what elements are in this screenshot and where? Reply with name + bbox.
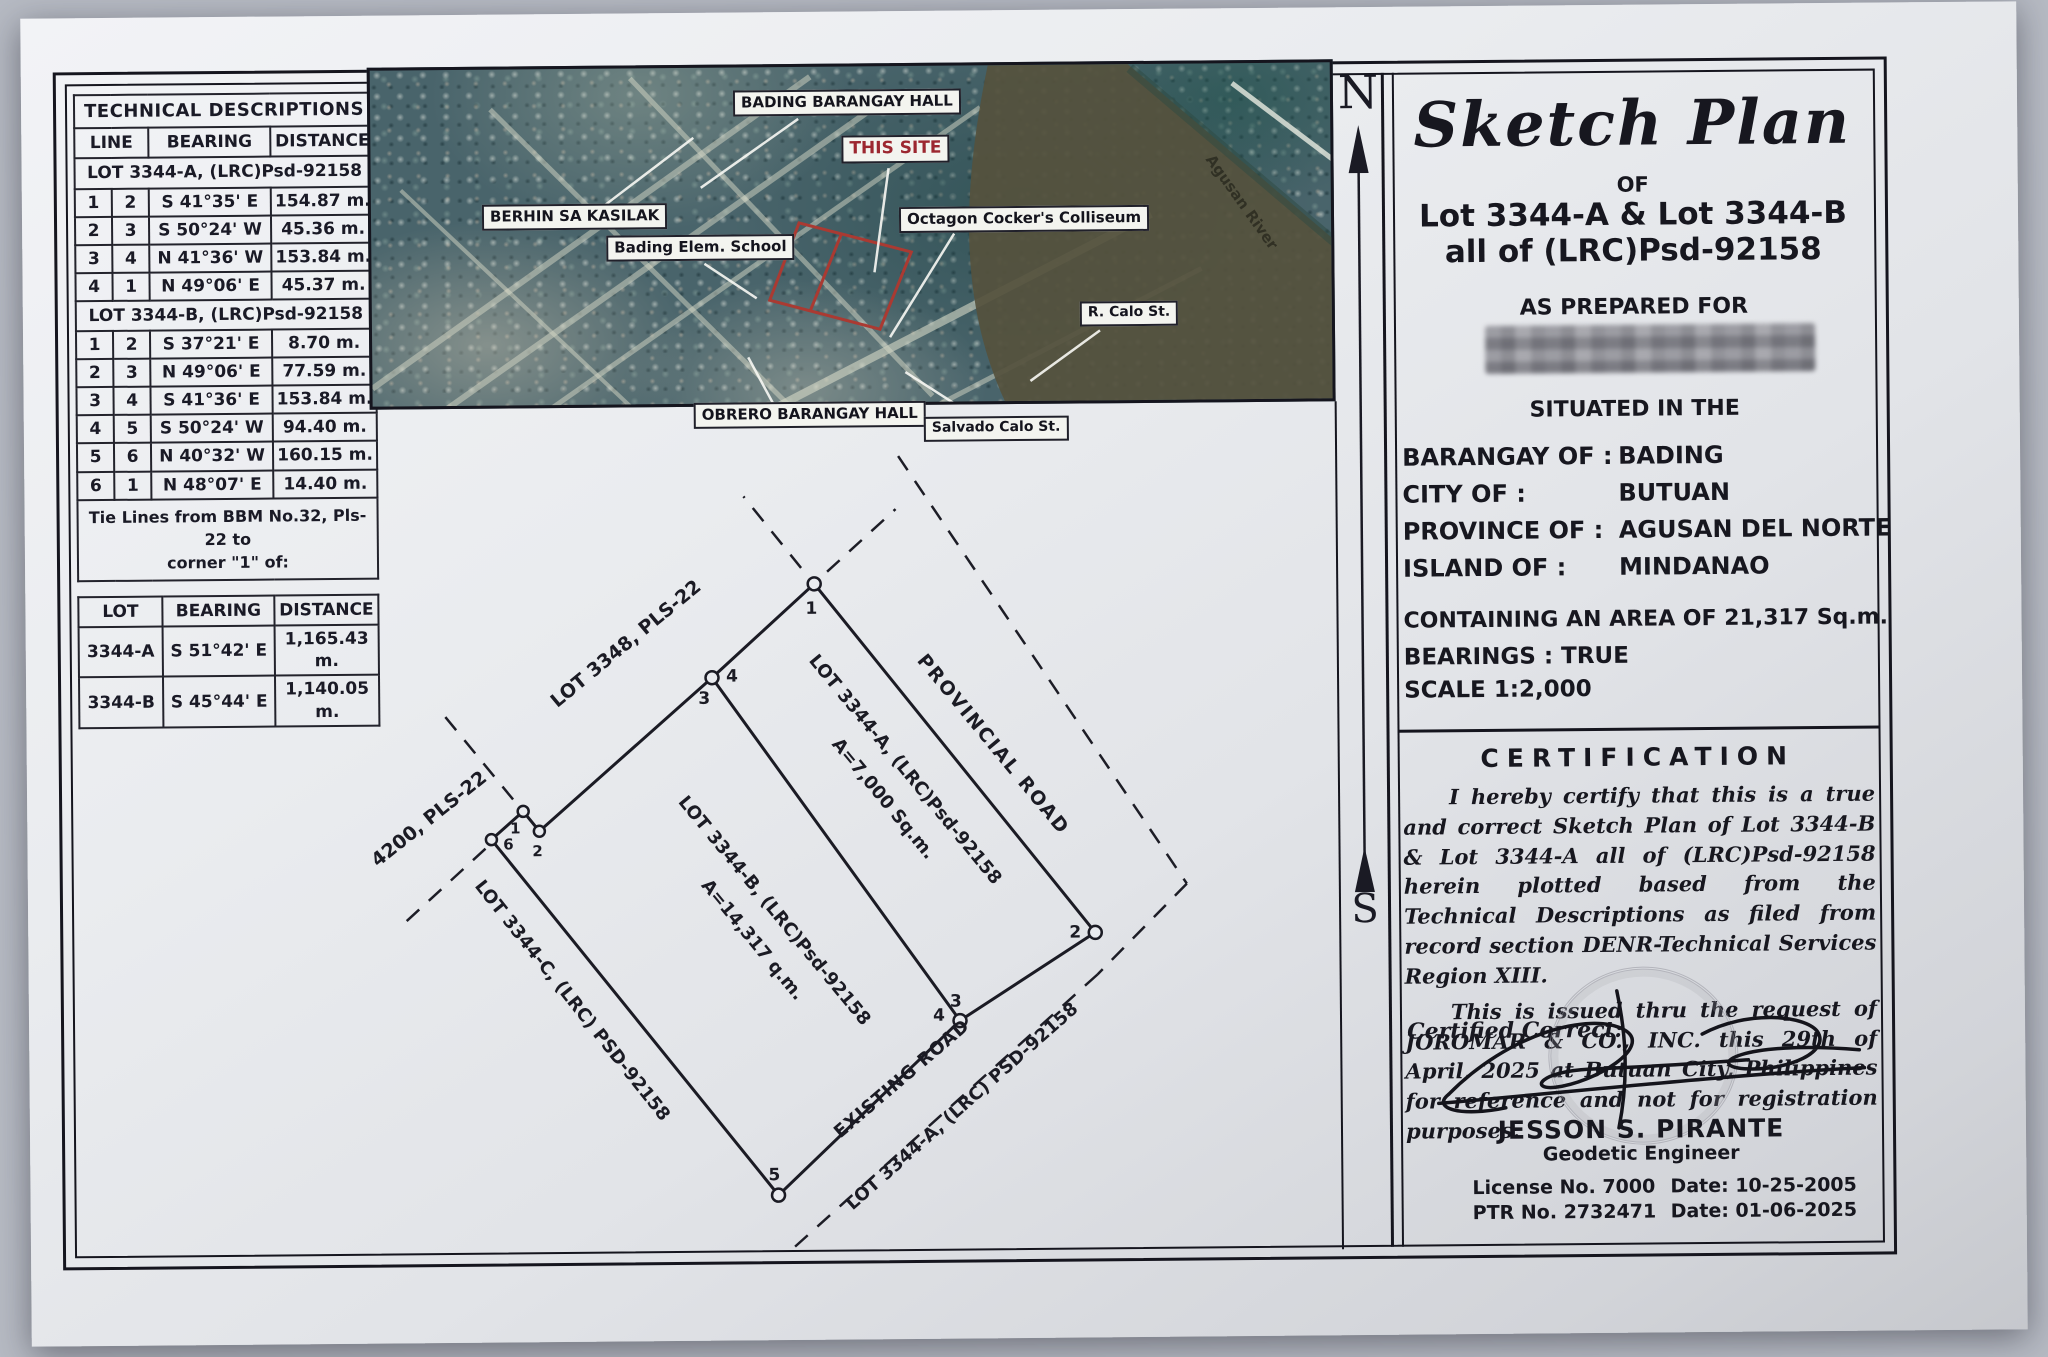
city-label: CITY OF : bbox=[1402, 480, 1526, 509]
technical-descriptions-block: TECHNICAL DESCRIPTIONS LINE BEARING DIST… bbox=[73, 92, 379, 729]
tie-lines-table: LOT BEARING DISTANCE 3344-AS 51°42' E1,1… bbox=[77, 594, 380, 729]
corner-number: 2 bbox=[1069, 923, 1081, 943]
table-row: 12S 41°35' E154.87 m. bbox=[75, 186, 375, 217]
location-row: ISLAND OF : MINDANAO bbox=[1403, 553, 1567, 591]
barangay-value: BADING bbox=[1618, 441, 1724, 470]
corner-number: 3 bbox=[698, 689, 710, 709]
location-row: BARANGAY OF : BADING bbox=[1402, 442, 1613, 481]
table-row: 3344-AS 51°42' E1,165.43 m. bbox=[79, 625, 379, 678]
table-row: 45S 50°24' W94.40 m. bbox=[77, 413, 377, 444]
lot-c-label: LOT 3344-C, (LRC) PSD-92158 bbox=[470, 876, 674, 1125]
table-row: 12S 37°21' E8.70 m. bbox=[76, 329, 376, 360]
agusan-river bbox=[968, 62, 1336, 407]
table-row: 23S 50°24' W45.36 m. bbox=[75, 214, 375, 245]
barangay-label: BARANGAY OF : bbox=[1402, 442, 1613, 472]
lot-plan-diagram: 1 4 3 2 3 4 5 1 6 2 LOT 3348, PLS-22 LOT… bbox=[368, 401, 1345, 1265]
lot-4200-label: LOT 4200, PLS-22 bbox=[368, 767, 491, 901]
map-label-salvado-calo-st: Salvado Calo St. bbox=[924, 416, 1069, 442]
table-row: 61N 48°07' E14.40 m. bbox=[77, 469, 377, 500]
island-value: MINDANAO bbox=[1619, 551, 1770, 580]
map-label-r-calo-st: R. Calo St. bbox=[1080, 301, 1179, 326]
corner-number: 4 bbox=[933, 1006, 945, 1026]
south-label: S bbox=[1342, 889, 1388, 929]
north-label: N bbox=[1335, 69, 1381, 115]
lot-3348-label: LOT 3348, PLS-22 bbox=[546, 576, 705, 713]
tie-lines-note: Tie Lines from BBM No.32, Pls-22 to corn… bbox=[77, 497, 378, 581]
corner-number: 1 bbox=[805, 599, 817, 619]
map-label-bading-hall: BADING BARANGAY HALL bbox=[733, 89, 961, 117]
certification-paragraph-1: I hereby certify that this is a true and… bbox=[1403, 779, 1877, 992]
tie-note-line1: Tie Lines from BBM No.32, Pls-22 to bbox=[82, 503, 372, 552]
ptr-date: Date: 01-06-2025 bbox=[1671, 1198, 1858, 1225]
sheet-content: TECHNICAL DESCRIPTIONS LINE BEARING DIST… bbox=[0, 0, 2048, 1357]
corner-number: 3 bbox=[950, 992, 962, 1012]
title-survey-number: all of (LRC)Psd-92158 bbox=[1390, 231, 1876, 271]
meridian-line bbox=[1359, 167, 1365, 859]
containing-area-line: CONTAINING AN AREA OF 21,317 Sq.m. bbox=[1403, 604, 1888, 633]
corner-number: 5 bbox=[768, 1165, 780, 1185]
situated-in-the-label: SITUATED IN THE bbox=[1392, 395, 1878, 424]
table-header-row: LINE BEARING DISTANCE bbox=[74, 126, 374, 159]
table-row: 3344-BS 45°44' E1,140.05 m. bbox=[79, 675, 379, 728]
scanned-sheet: TECHNICAL DESCRIPTIONS LINE BEARING DIST… bbox=[20, 1, 2028, 1346]
license-block: License No. 7000 PTR No. 2732471 bbox=[1472, 1175, 1656, 1227]
bridge-line bbox=[1232, 82, 1336, 163]
table-row: 34S 41°36' E153.84 m. bbox=[76, 385, 376, 416]
map-label-octagon-coliseum: Octagon Cocker's Colliseum bbox=[899, 205, 1149, 233]
table-row: 23N 49°06' E77.59 m. bbox=[76, 357, 376, 388]
title-lots: Lot 3344-A & Lot 3344-B bbox=[1390, 195, 1876, 235]
tie-note-line2: corner "1" of: bbox=[83, 550, 373, 576]
lot-b-label: LOT 3344-B, (LRC)Psd-92158 bbox=[674, 792, 875, 1030]
technical-descriptions-table: TECHNICAL DESCRIPTIONS LINE BEARING DIST… bbox=[73, 92, 379, 583]
north-arrow bbox=[1335, 117, 1388, 907]
corner-number: 2 bbox=[532, 842, 543, 860]
map-label-elem-school: Bading Elem. School bbox=[606, 234, 795, 261]
table-row: 56N 40°32' W160.15 m. bbox=[77, 441, 377, 472]
table-title: TECHNICAL DESCRIPTIONS bbox=[74, 93, 374, 129]
as-prepared-for-label: AS PREPARED FOR bbox=[1391, 293, 1877, 322]
license-date: Date: 10-25-2005 bbox=[1670, 1173, 1857, 1200]
license-number: License No. 7000 bbox=[1472, 1175, 1656, 1202]
lot-a-label: LOT 3344-A, (LRC)Psd-92158 bbox=[804, 651, 1005, 889]
location-row: PROVINCE OF : AGUSAN DEL NORTE bbox=[1403, 516, 1604, 555]
table-row: 34N 41°36' W153.84 m. bbox=[75, 242, 375, 273]
lotB-section-header: LOT 3344-B, (LRC)Psd-92158 bbox=[76, 299, 376, 332]
certification-heading: CERTIFICATION bbox=[1395, 741, 1881, 774]
engineer-title: Geodetic Engineer bbox=[1398, 1141, 1884, 1167]
table-row: 41N 49°06' E45.37 m. bbox=[75, 271, 375, 302]
location-row: CITY OF : BUTUAN bbox=[1402, 480, 1526, 518]
province-value: AGUSAN DEL NORTE bbox=[1619, 513, 1892, 543]
table-title-row: TECHNICAL DESCRIPTIONS bbox=[74, 93, 374, 129]
table-header-row: LOT BEARING DISTANCE bbox=[78, 595, 378, 628]
province-label: PROVINCE OF : bbox=[1403, 516, 1604, 546]
ptr-number: PTR No. 2732471 bbox=[1473, 1200, 1657, 1227]
tie-and-road-dashed-lines bbox=[400, 454, 1190, 1256]
map-label-this-site: THIS SITE bbox=[841, 135, 949, 164]
corner-number: 6 bbox=[503, 835, 514, 853]
island-label: ISLAND OF : bbox=[1403, 553, 1566, 582]
map-label-berhin-sa-kasilak: BERHIN SA KASILAK bbox=[482, 203, 667, 230]
bearings-line: BEARINGS : TRUE bbox=[1404, 643, 1629, 671]
north-arrowhead bbox=[1348, 125, 1368, 173]
dates-block: Date: 10-25-2005 Date: 01-06-2025 bbox=[1670, 1173, 1857, 1225]
lotA-section-header: LOT 3344-A, (LRC)Psd-92158 bbox=[74, 156, 374, 189]
map-label-obrero-hall: OBRERO BARANGAY HALL bbox=[694, 401, 926, 429]
city-value: BUTUAN bbox=[1618, 478, 1730, 507]
corner-number: 4 bbox=[726, 666, 738, 686]
sheet-title: Sketch Plan bbox=[1389, 85, 1876, 162]
scale-line: SCALE 1:2,000 bbox=[1404, 676, 1592, 704]
redacted-client-name bbox=[1485, 323, 1815, 374]
